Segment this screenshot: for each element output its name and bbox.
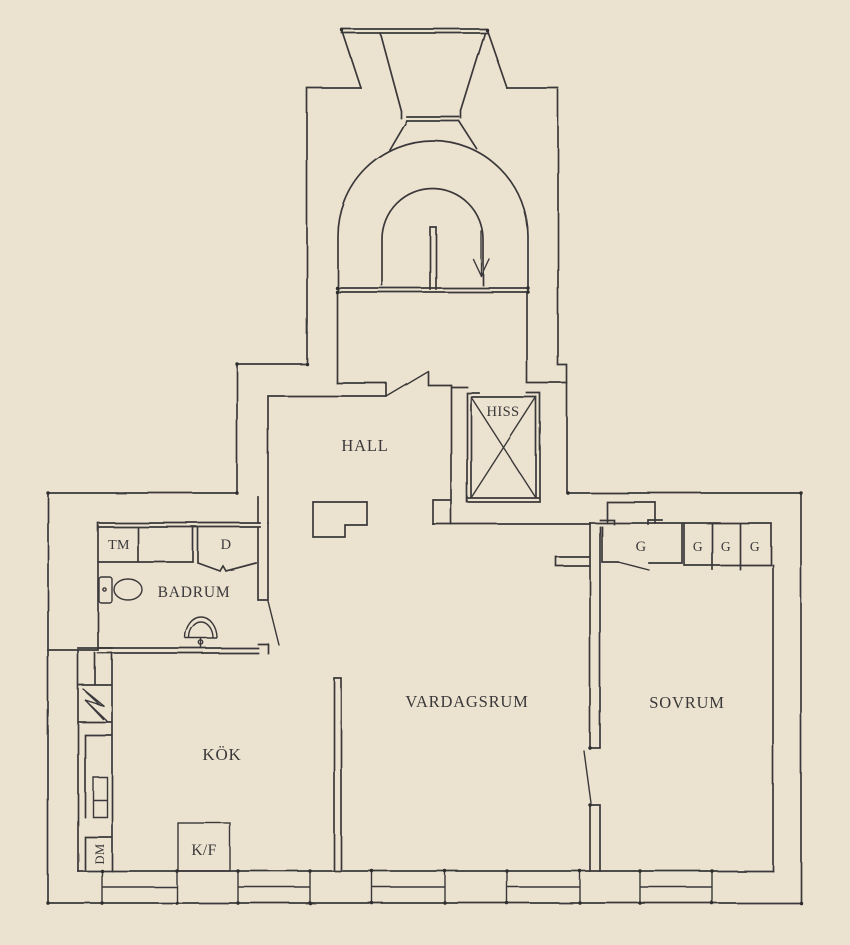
label-wardrobe: G: [721, 539, 731, 554]
door-leaf: [268, 601, 279, 645]
door-leaf: [584, 751, 591, 803]
outer-walls: [48, 88, 801, 903]
kitchen-sink-icon: [93, 777, 107, 817]
label-shower-cabinet: D: [221, 537, 232, 553]
label-dishwasher: DM: [93, 844, 107, 865]
window: [640, 871, 712, 903]
room-label-bathroom: BADRUM: [158, 584, 231, 601]
stove-icon: [83, 689, 107, 721]
window: [372, 871, 445, 903]
sketch-joints: [48, 30, 801, 903]
window: [507, 871, 580, 903]
room-label-bedroom: SOVRUM: [649, 693, 724, 712]
label-fridge-freezer: K/F: [191, 842, 216, 859]
label-wardrobe: G: [750, 539, 760, 554]
entrance-vestibule: [342, 29, 507, 150]
label-washing-machine: TM: [108, 538, 130, 553]
door-leaf: [386, 371, 428, 396]
window: [102, 871, 177, 903]
room-label-hall: HALL: [341, 436, 388, 455]
label-wardrobe: G: [636, 539, 647, 555]
interior-pillars: [313, 502, 662, 537]
room-label-elevator: HISS: [486, 404, 519, 420]
label-wardrobe: G: [693, 539, 703, 554]
room-label-living-room: VARDAGSRUM: [405, 692, 528, 711]
toilet-icon: [99, 577, 142, 603]
stairs-icon: [337, 141, 567, 383]
room-label-kitchen: KÖK: [202, 745, 241, 764]
down-arrow-icon: [473, 231, 489, 276]
window: [238, 871, 310, 903]
floor-plan: HALL HISS BADRUM VARDAGSRUM SOVRUM KÖK T…: [0, 0, 850, 945]
facade-windows: [78, 871, 773, 903]
sink-icon: [185, 617, 217, 648]
wardrobe-closets: [590, 523, 771, 570]
closet-door-leaf: [618, 562, 649, 570]
